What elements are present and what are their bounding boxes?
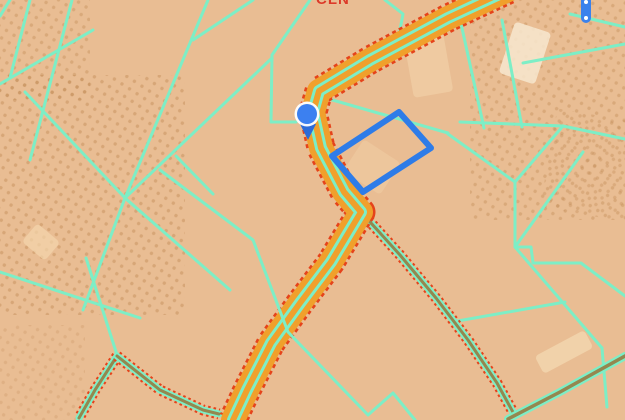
map-layers <box>0 0 625 420</box>
vertex-handle-dot[interactable] <box>584 16 588 20</box>
parcel-boundary-line <box>602 348 607 407</box>
vertex-handle-dot[interactable] <box>584 0 588 4</box>
orchard-field-patch <box>0 0 90 100</box>
parcel-boundary-line <box>322 97 448 133</box>
parcel-boundary-line <box>160 170 415 420</box>
map-canvas[interactable]: CLN <box>0 0 625 420</box>
road-teal-lines <box>361 212 514 414</box>
farm-track-center <box>508 356 625 419</box>
parcel-boundary-line <box>452 302 565 322</box>
parcel-boundary-line <box>193 0 253 40</box>
road-label-cln: CLN <box>316 0 350 7</box>
orchard-field-patch <box>0 325 85 420</box>
location-marker[interactable] <box>297 104 317 124</box>
parcel-boundary-line <box>515 247 625 296</box>
bare-field-patch <box>535 330 594 374</box>
